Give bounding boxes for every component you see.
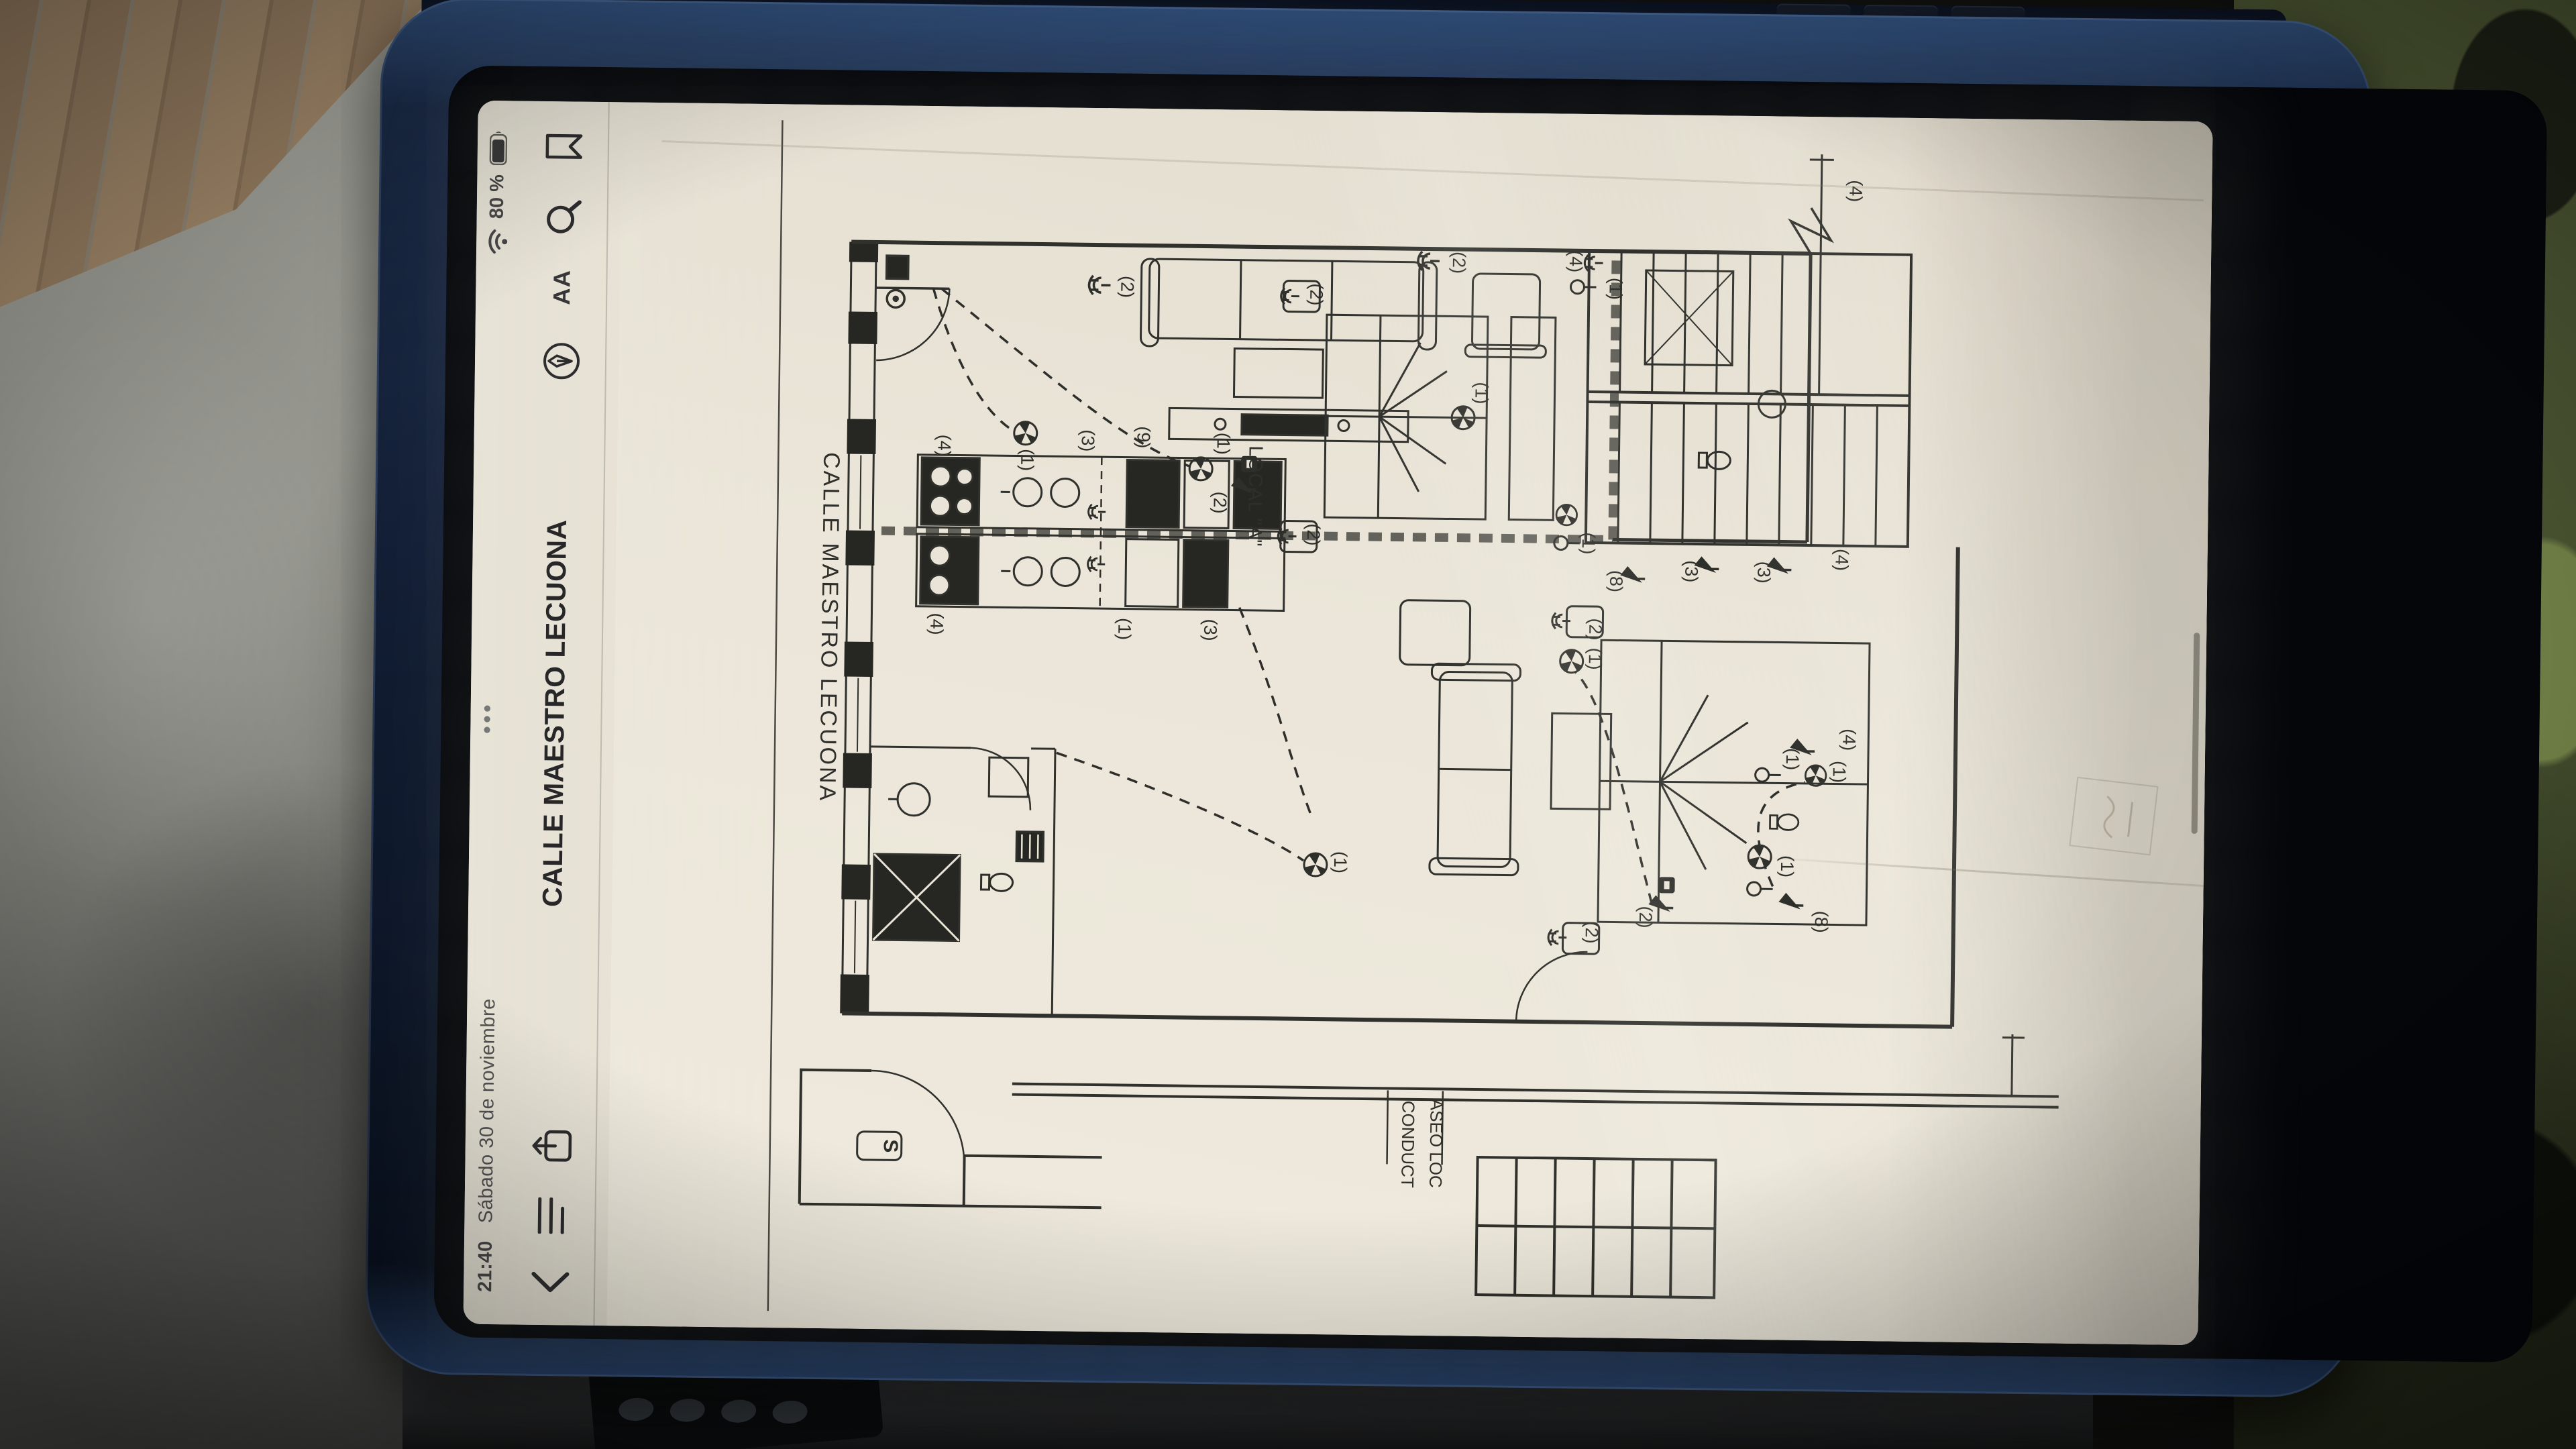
plan-text-label: S [879,1139,902,1152]
plan-text-label: (1) [1782,748,1803,770]
plan-text-label: CONDUCT [1397,1101,1419,1188]
plan-text-label: (2) [1117,276,1137,298]
plan-text-label: (2) [1449,252,1469,274]
search-icon [544,199,582,236]
photo-scene: 21:40Sábado 30 de noviembre ••• 80 % [0,0,2576,1449]
plan-text-label: (1) [1114,618,1134,640]
markup-circle-icon [542,341,582,381]
search-button[interactable] [539,194,587,241]
plan-text-label: (1) [1017,449,1037,471]
date: Sábado 30 de noviembre [475,998,499,1223]
plan-text-label: ASEO LOC [1426,1099,1447,1188]
plan-text-label: (3) [1681,560,1701,582]
plan-text-label: (1) [1578,532,1599,554]
plan-text-label: (1) [1213,433,1233,455]
text-size-button[interactable]: AA [539,264,586,311]
plan-text-label: (4) [926,612,947,635]
crate-hole [669,1397,706,1423]
crate-hole [618,1397,655,1422]
pdf-toolbar: CALLE MAESTRO LECUONA AA [506,101,608,1326]
crate-hole [771,1399,808,1425]
markup-button[interactable] [538,337,586,385]
plan-text-label: (2) [1303,523,1324,545]
plan-text-label: (2) [1585,618,1605,640]
bookmark-icon [545,131,584,162]
status-time-date: 21:40Sábado 30 de noviembre [474,998,500,1292]
wifi-icon [486,228,507,255]
plan-text-label: (8) [1606,570,1626,592]
plan-text-label: (3) [1077,429,1097,451]
plan-text-label: (2) [1210,492,1230,514]
plan-text-label: LOCAL "A" [1244,445,1267,547]
plan-text-label: (9) [1134,426,1154,448]
plan-text-label: (3) [1754,561,1774,584]
plan-text-label: (1) [1471,382,1491,404]
faint-approval-stamp [2069,777,2158,856]
plan-text-label: (4) [1831,549,1851,571]
crate-hole [720,1398,757,1424]
plan-text-label: (3) [1200,619,1220,641]
plan-text-label: (4) [1845,180,1866,202]
plan-text-label: (1) [1585,647,1605,669]
plan-text-label: (1) [1605,278,1625,300]
plan-text-label: (4) [934,435,954,457]
plan-text-label: CALLE MAESTRO LECUONA [814,452,844,803]
plan-text-label: (8) [1811,911,1831,933]
pdf-viewer-app: 21:40Sábado 30 de noviembre ••• 80 % [463,101,2212,1345]
clock: 21:40 [474,1240,496,1292]
plan-text-label: (2) [1306,283,1326,305]
plan-text-label: (4) [1839,729,1859,751]
plan-text-label: (2) [1582,921,1602,943]
plan-text-label: (1) [1330,851,1350,873]
floor-plan-drawing: CALLE MAESTRO LECUONALOCAL "A"CONDUCTASE… [761,104,2212,1345]
multitask-dots[interactable]: ••• [474,702,501,734]
bookmark-button[interactable] [541,123,588,170]
battery-icon [489,130,507,165]
battery-percent: 80 % [486,174,509,219]
plan-text-label: (2) [1635,906,1656,928]
plan-text-label: (1) [1829,761,1849,783]
ipad-tablet: 21:40Sábado 30 de noviembre ••• 80 % [365,0,2373,1398]
plan-text-label: (4) [1566,250,1586,272]
text-size-icon: AA [549,270,576,305]
ipad-screen: 21:40Sábado 30 de noviembre ••• 80 % [463,101,2212,1345]
pdf-page-scroll-area[interactable]: CALLE MAESTRO LECUONALOCAL "A"CONDUCTASE… [606,102,2212,1345]
